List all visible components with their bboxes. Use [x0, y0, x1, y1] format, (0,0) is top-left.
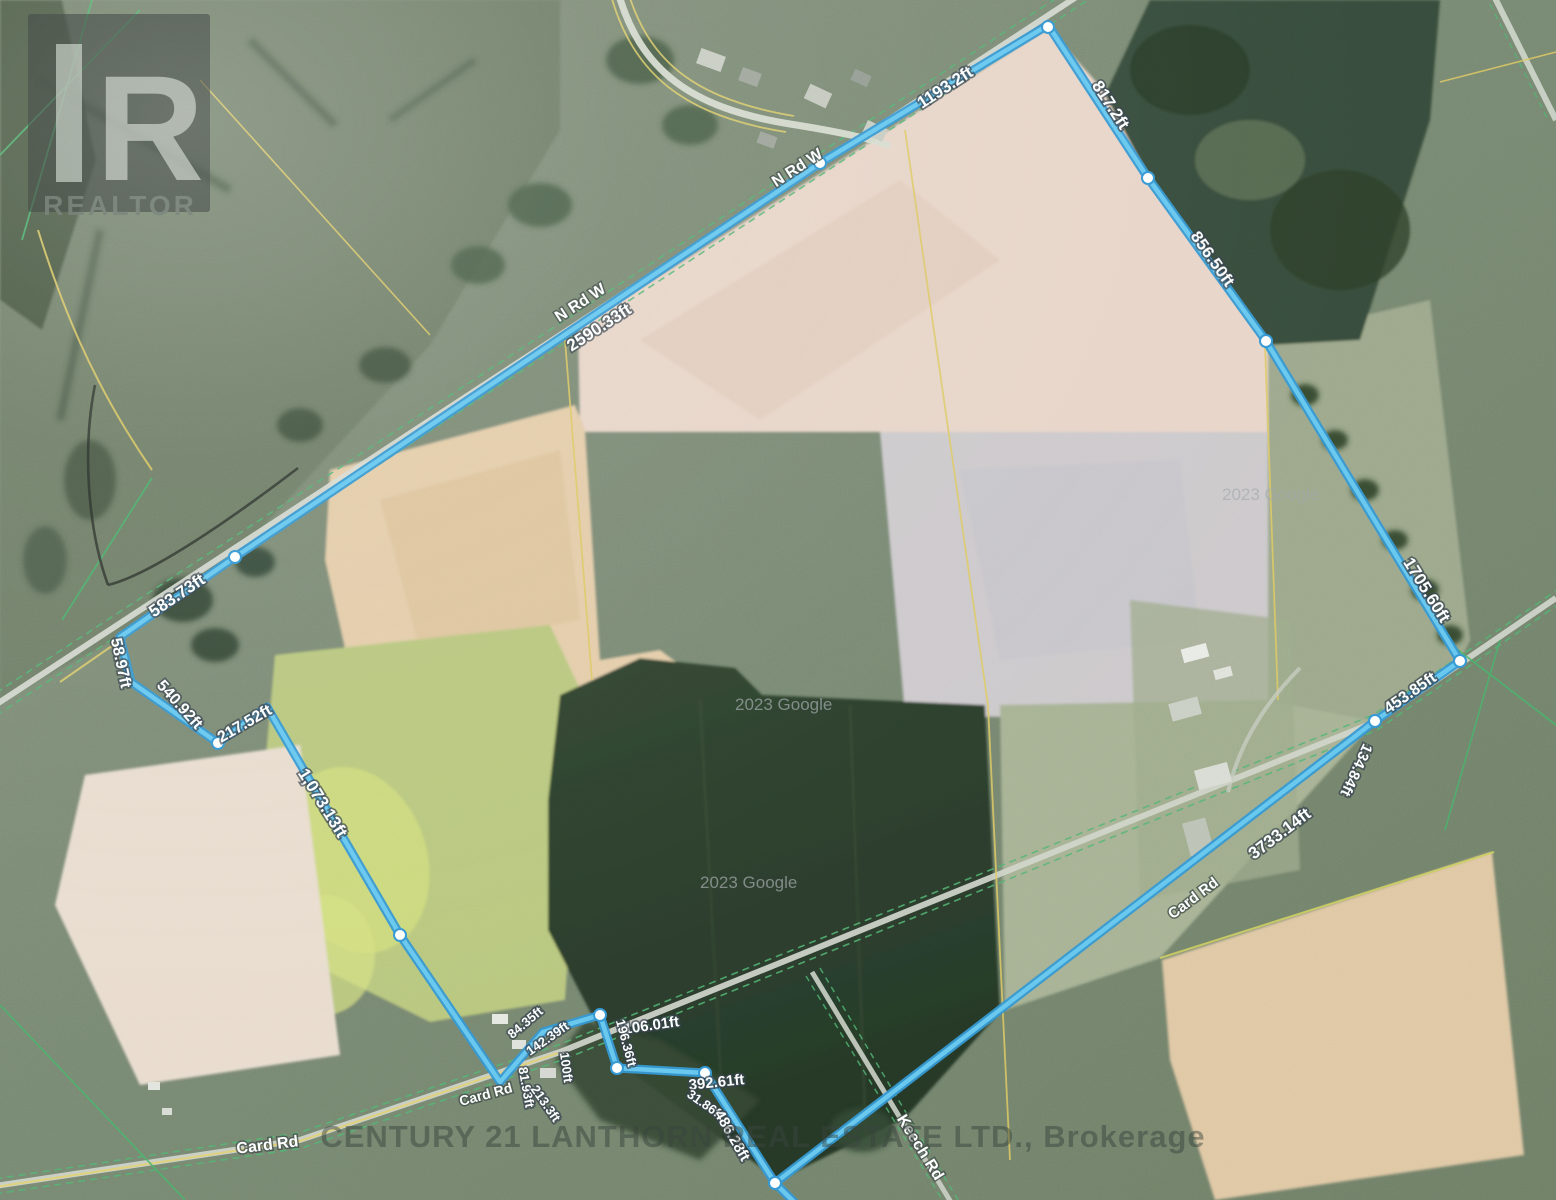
aerial-map: 1193.2ft 2590.33ft 817.2ft 856.50ft 1705… — [0, 0, 1556, 1200]
satellite-image: 1193.2ft 2590.33ft 817.2ft 856.50ft 1705… — [0, 0, 1556, 1200]
photo-haze — [0, 0, 1556, 1200]
